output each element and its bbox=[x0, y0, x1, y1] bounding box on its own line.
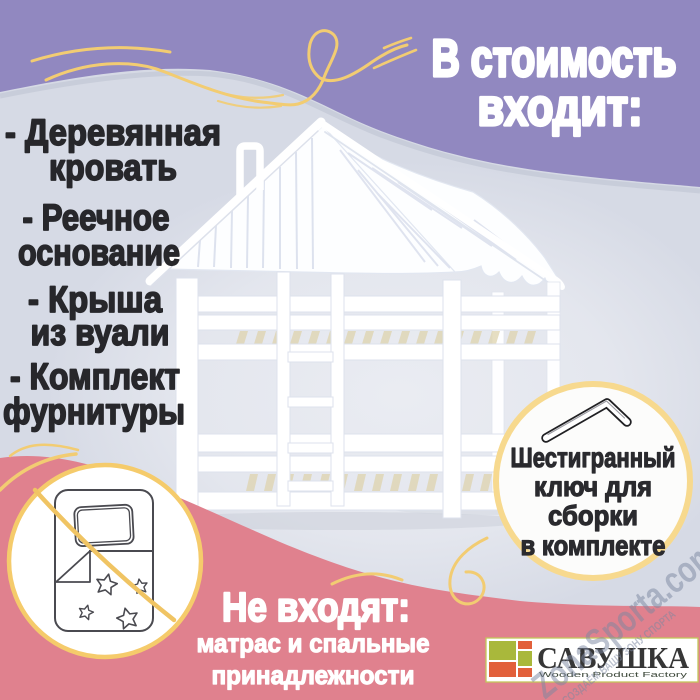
svg-text:ключ для: ключ для bbox=[534, 471, 652, 502]
svg-text:кровать: кровать bbox=[49, 147, 177, 188]
svg-text:входит:: входит: bbox=[478, 79, 643, 137]
svg-text:Не входят:: Не входят: bbox=[222, 584, 410, 630]
svg-text:сборки: сборки bbox=[548, 500, 638, 531]
svg-text:матрас и спальные: матрас и спальные bbox=[197, 628, 430, 658]
svg-text:в комплекте: в комплекте bbox=[521, 530, 666, 561]
svg-text:основание: основание bbox=[18, 232, 180, 273]
svg-text:фурнитуры: фурнитуры bbox=[3, 391, 185, 432]
svg-text:принадлежности: принадлежности bbox=[212, 660, 415, 690]
svg-text:Шестигранный: Шестигранный bbox=[511, 442, 676, 473]
svg-text:из вуали: из вуали bbox=[31, 312, 170, 353]
